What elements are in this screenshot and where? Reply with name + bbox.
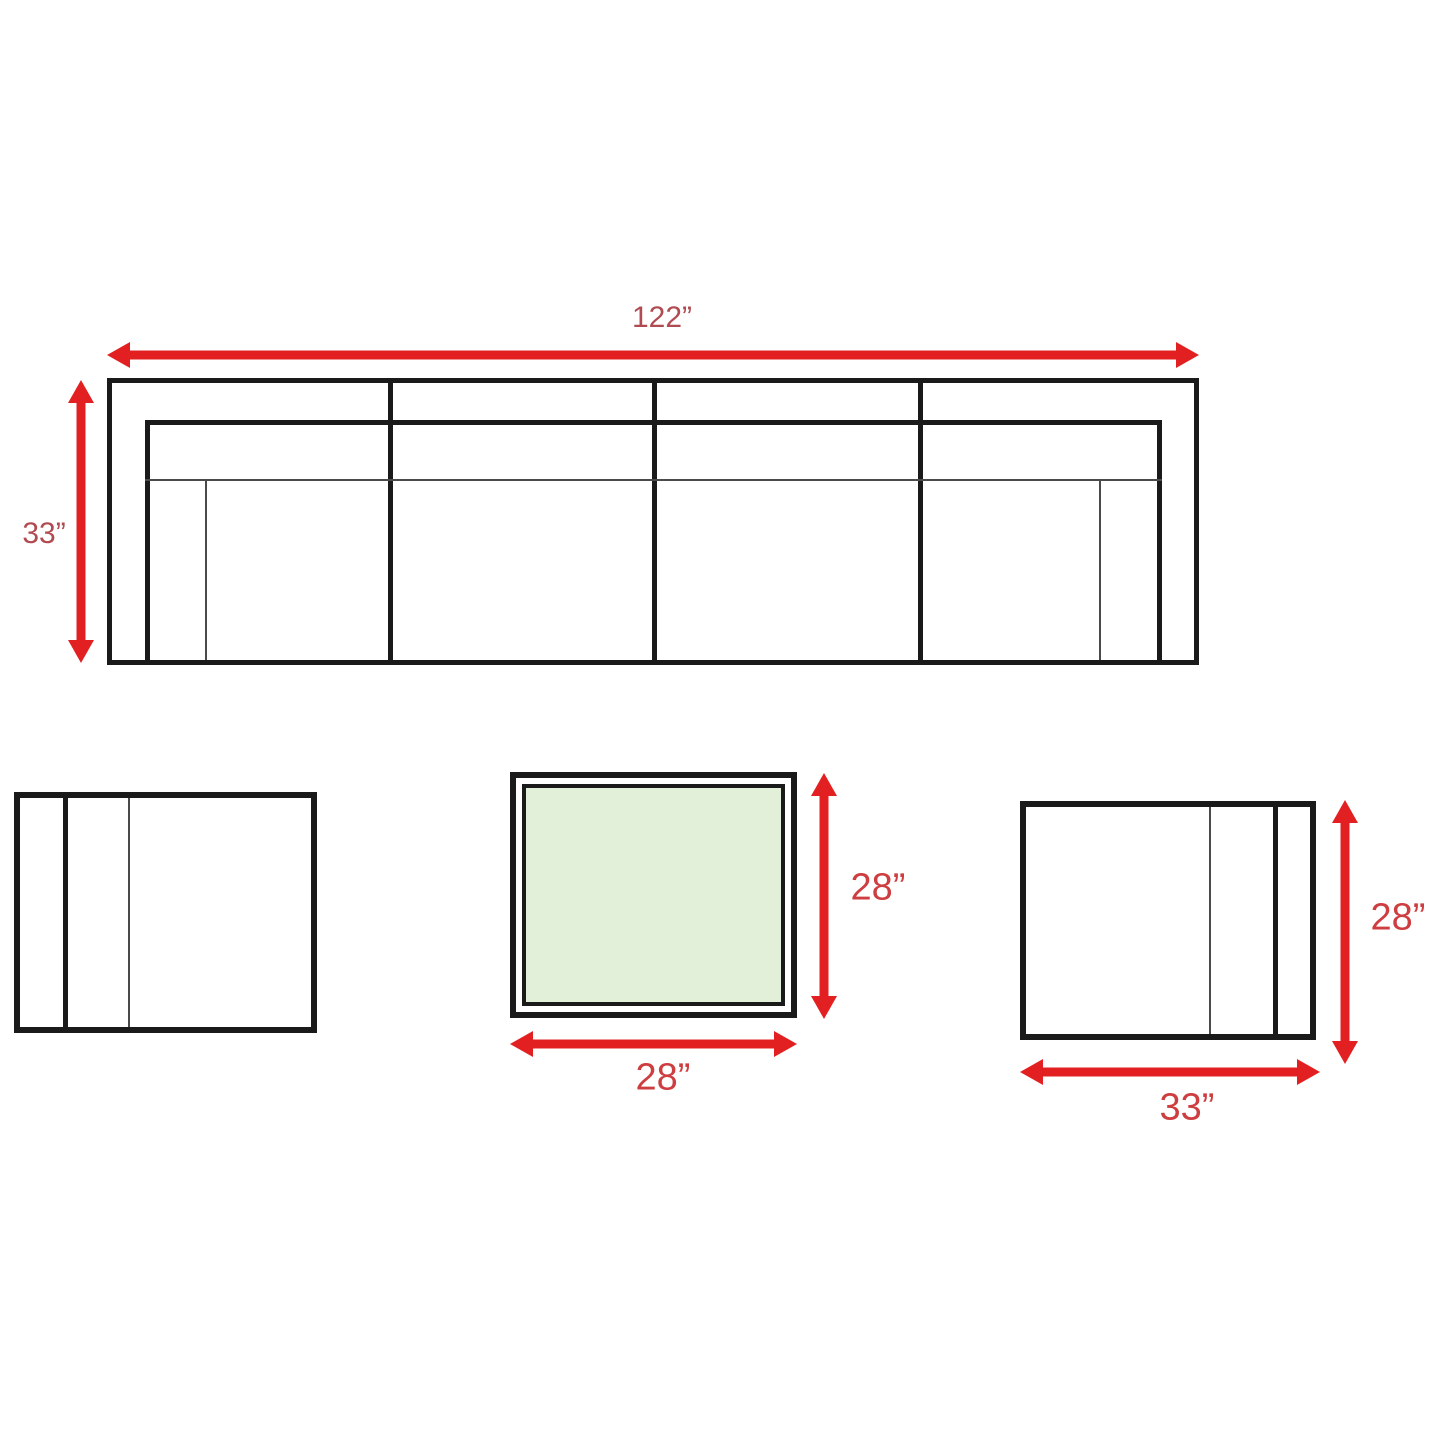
right-chair-arm-line	[1273, 807, 1278, 1034]
right-chair-outline	[1020, 801, 1316, 1040]
sofa-section-divider	[918, 383, 923, 660]
coffee-table-depth-dimension-arrow	[810, 773, 838, 1019]
furniture-dimension-diagram: 122” 33” 28” 28” 28” 3	[0, 0, 1445, 1445]
right-chair-cushion-line	[1209, 807, 1211, 1034]
coffee-table-width-dimension-arrow	[510, 1030, 797, 1058]
arrow-down-head	[1332, 1041, 1358, 1064]
sofa-right-arm-line	[1099, 479, 1101, 660]
arrow-bar	[1341, 818, 1350, 1046]
sofa-depth-label: 33”	[22, 517, 65, 551]
coffee-table-width-label: 28”	[636, 1057, 691, 1100]
right-chair-depth-dimension-arrow	[1331, 800, 1359, 1064]
arrow-down-head	[68, 640, 94, 663]
coffee-table-glass-top	[522, 784, 785, 1006]
coffee-table-outline	[510, 772, 797, 1018]
arrow-bar	[1038, 1068, 1302, 1077]
coffee-table-depth-label: 28”	[851, 867, 906, 910]
sofa-section-divider	[652, 383, 657, 660]
sofa-section-divider	[388, 383, 393, 660]
left-chair-cushion-line	[128, 798, 130, 1027]
arrow-right-head	[1297, 1059, 1320, 1085]
arrow-right-head	[774, 1031, 797, 1057]
right-chair-depth-label: 28”	[1371, 897, 1426, 940]
arrow-bar	[528, 1040, 779, 1049]
sofa-width-dimension-arrow	[107, 341, 1199, 369]
arrow-bar	[77, 398, 86, 645]
left-chair-outline	[14, 792, 317, 1033]
sofa-width-label: 122”	[632, 301, 692, 335]
sofa-depth-dimension-arrow	[67, 380, 95, 663]
arrow-bar	[820, 791, 829, 1001]
sofa-left-arm-line	[205, 479, 207, 660]
sofa-seat-front-line	[145, 479, 1162, 481]
sofa-outline	[107, 378, 1199, 665]
right-chair-width-dimension-arrow	[1020, 1058, 1320, 1086]
right-chair-width-label: 33”	[1160, 1087, 1215, 1130]
left-chair-arm-line	[63, 798, 68, 1027]
arrow-right-head	[1176, 342, 1199, 368]
arrow-down-head	[811, 996, 837, 1019]
arrow-bar	[125, 351, 1181, 360]
